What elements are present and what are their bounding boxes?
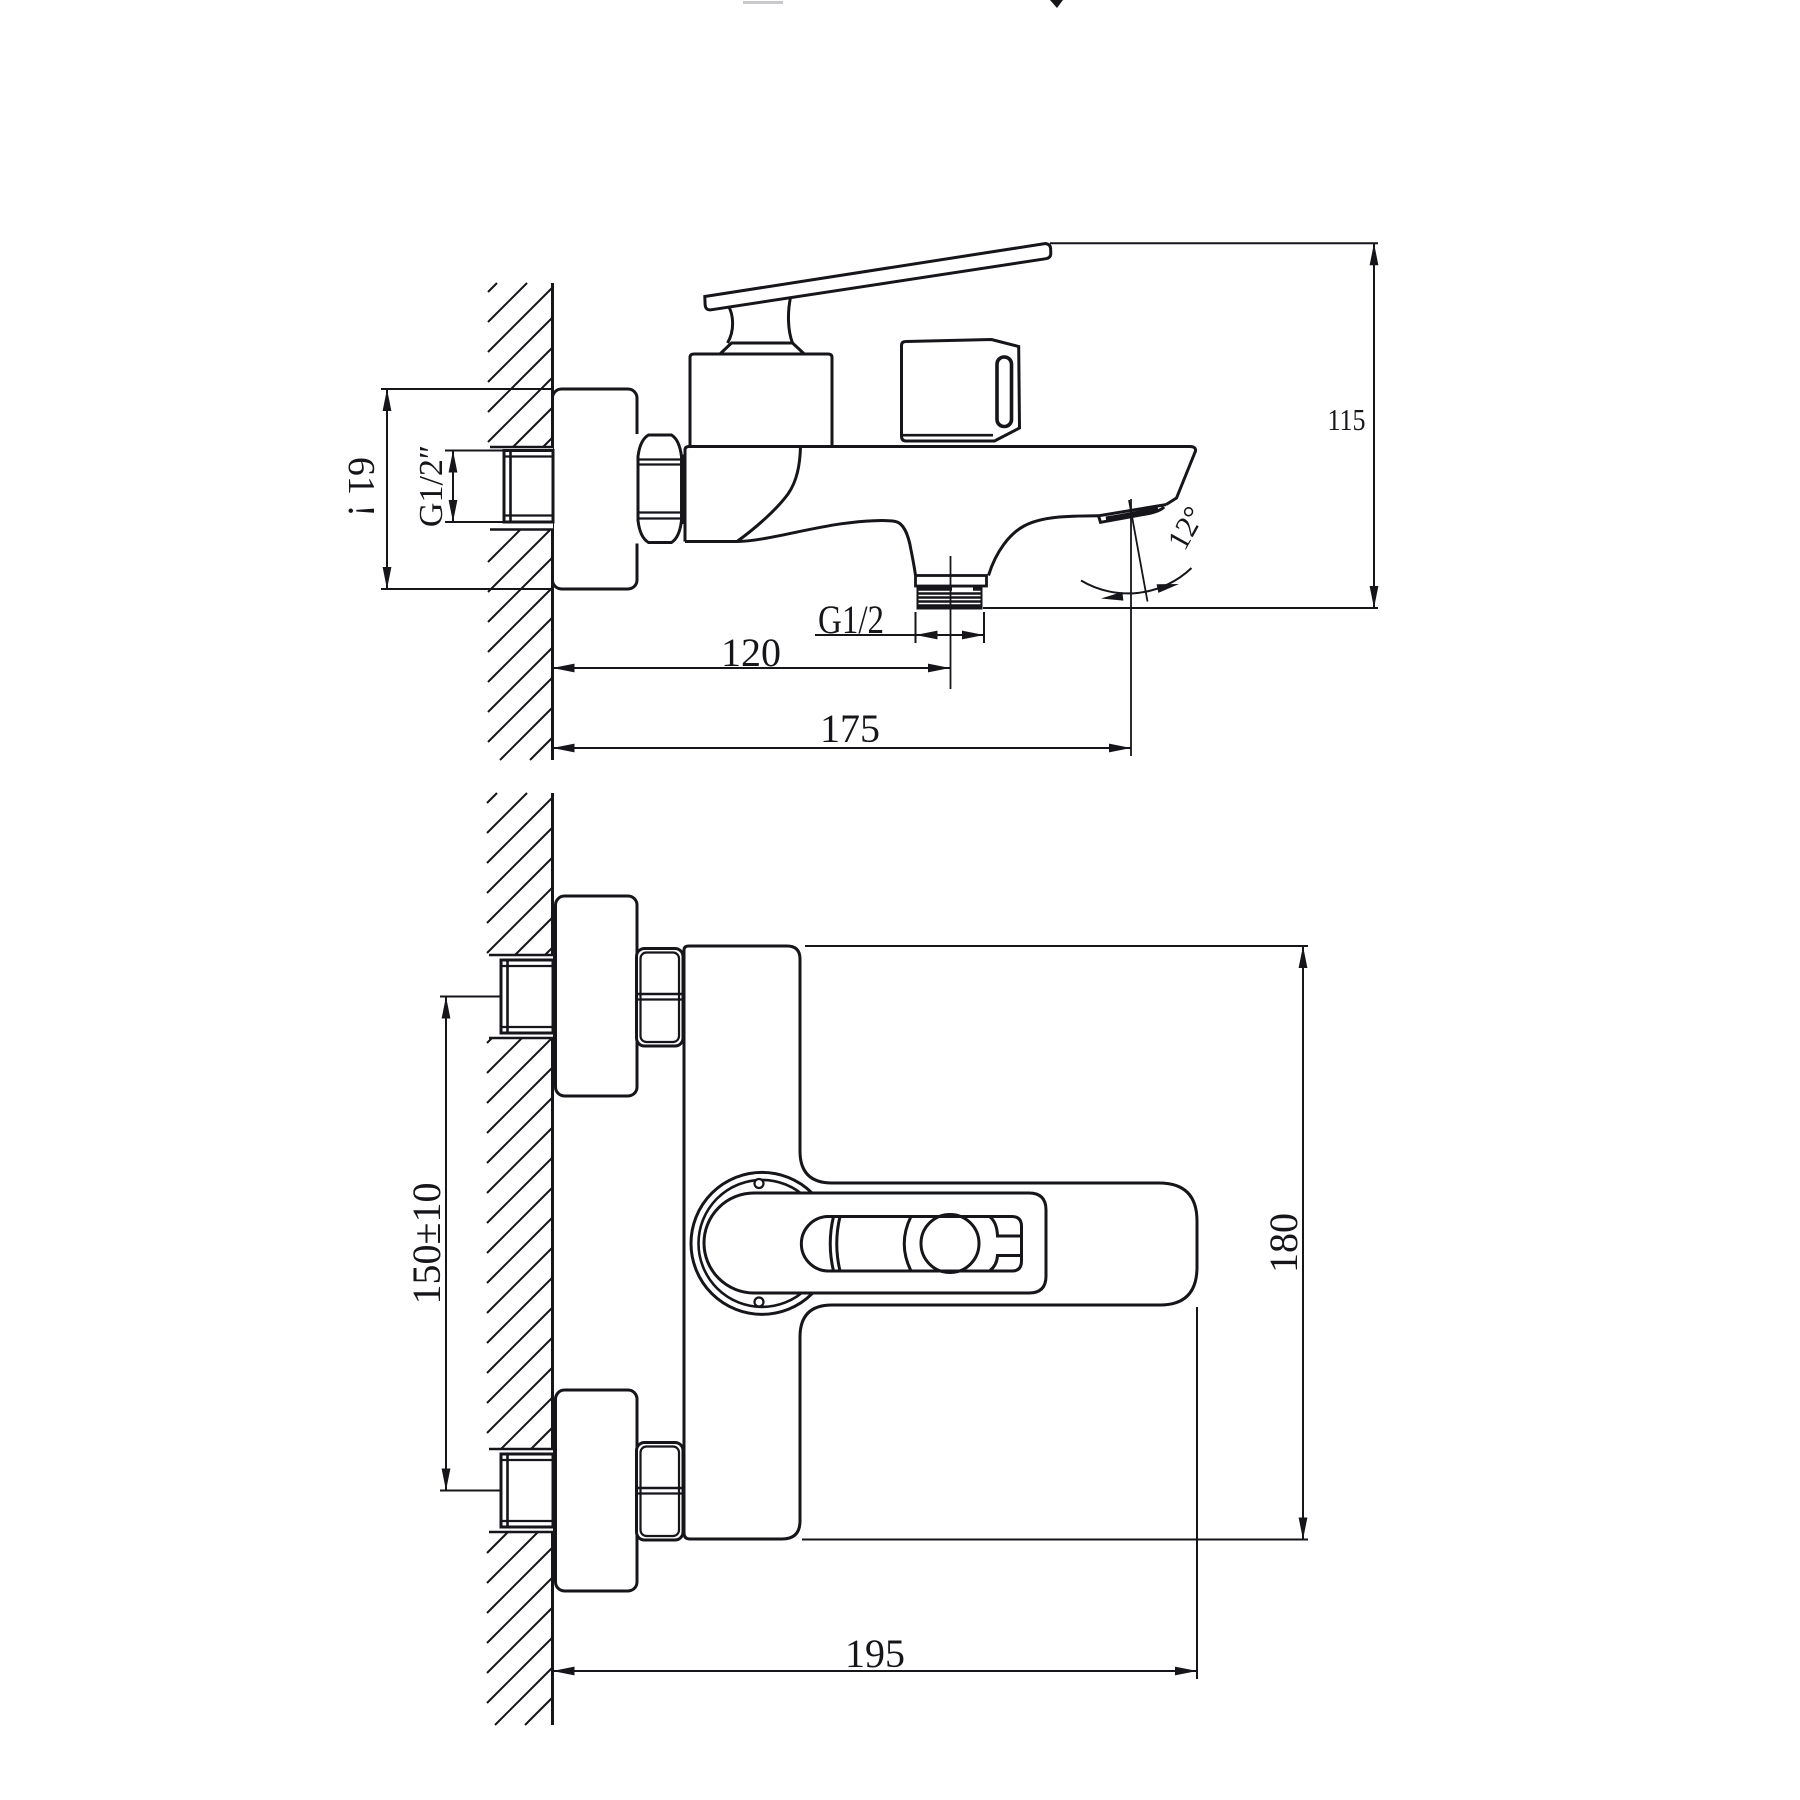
svg-text:180: 180 (1261, 1213, 1306, 1273)
svg-text:G1/2″: G1/2″ (413, 445, 450, 527)
svg-text:150±10: 150±10 (404, 1183, 449, 1305)
svg-text:115: 115 (1328, 402, 1366, 437)
svg-text:195: 195 (845, 1631, 905, 1676)
svg-text:61 !: 61 ! (340, 457, 382, 517)
svg-text:G1/2: G1/2 (818, 597, 884, 642)
svg-text:175: 175 (820, 706, 880, 751)
svg-text:120: 120 (721, 630, 781, 675)
